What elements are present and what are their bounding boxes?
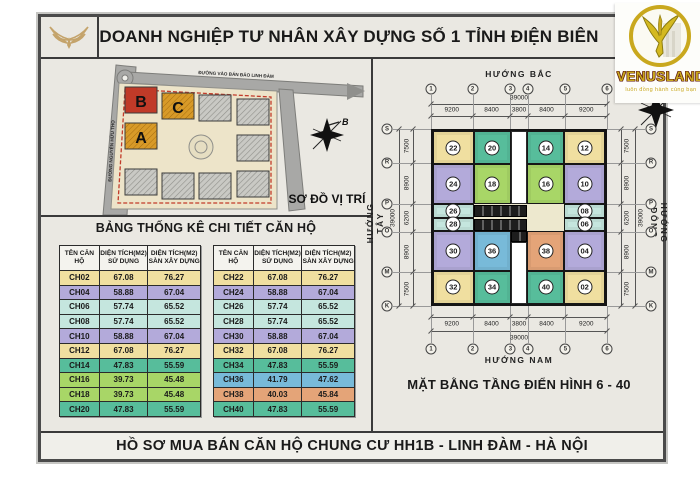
block-b-label: B xyxy=(135,94,147,111)
unit-26: 26 xyxy=(433,204,474,218)
dimension-line xyxy=(431,116,607,117)
dimension-label: 9200 xyxy=(445,321,459,328)
unit-number: 12 xyxy=(577,140,592,155)
tower-block xyxy=(125,169,157,195)
unit-10: 10 xyxy=(564,164,605,204)
dimension-label: 8400 xyxy=(539,321,553,328)
dimension-label: 8400 xyxy=(539,107,553,114)
grid-leader-line xyxy=(565,95,566,129)
unit-number: 26 xyxy=(446,203,461,218)
floor-area-value: 55.59 xyxy=(148,358,201,373)
grid-leader-line xyxy=(607,163,645,164)
tower-block xyxy=(237,99,269,125)
grid-row-marker: K xyxy=(382,301,393,312)
tower-block xyxy=(199,173,231,199)
brand-tagline: luôn đồng hành cùng bạn xyxy=(615,87,700,93)
use-area-value: 58.88 xyxy=(99,329,148,344)
table-row: CH1447.8355.59 xyxy=(60,358,201,373)
use-area-value: 67.08 xyxy=(99,271,148,286)
grid-leader-line xyxy=(565,306,566,343)
footer-bar: HỒ SƠ MUA BÁN CĂN HỘ CHUNG CƯ HH1B - LIN… xyxy=(41,431,663,459)
grid-leader-line xyxy=(607,95,608,129)
unit-name: CH04 xyxy=(60,285,100,300)
venusland-logo: VENUSLAND luôn đồng hành cùng bạn xyxy=(615,3,700,103)
grid-leader-line xyxy=(607,204,645,205)
grid-leader-line xyxy=(510,306,511,343)
use-area-value: 57.74 xyxy=(99,300,148,315)
dimension-line xyxy=(399,129,400,306)
grid-column-marker: 2 xyxy=(467,344,478,355)
floor-area-value: 55.59 xyxy=(148,402,201,417)
unit-number: 04 xyxy=(577,244,592,259)
grid-column-marker: 5 xyxy=(560,344,571,355)
floor-area-value: 67.04 xyxy=(302,285,355,300)
unit-36: 36 xyxy=(474,231,511,270)
unit-number: 18 xyxy=(485,177,500,192)
dimension-label: 8900 xyxy=(624,176,631,190)
use-area-value: 47.83 xyxy=(253,358,302,373)
unit-number: 34 xyxy=(485,280,500,295)
unit-name: CH02 xyxy=(60,271,100,286)
dimension-label: 7500 xyxy=(404,282,411,296)
site-map: B C A ĐƯỜNG VÀO BÁN ĐẢO LINH ĐÀM ĐƯỜNG N… xyxy=(41,59,371,215)
floor-area-value: 55.59 xyxy=(302,402,355,417)
unit-table-left: TÊN CĂN HỘ DIỆN TÍCH(M2)SỬ DỤNG DIỆN TÍC… xyxy=(59,245,201,417)
use-area-value: 39.73 xyxy=(99,387,148,402)
direction-south: HƯỚNG NAM xyxy=(431,355,607,365)
unit-number: 28 xyxy=(446,217,461,232)
unit-name: CH08 xyxy=(60,314,100,329)
dimension-line xyxy=(413,129,414,306)
table-row: CH2657.7465.52 xyxy=(214,300,355,315)
site-map-title: SƠ ĐỒ VỊ TRÍ xyxy=(289,191,367,206)
unit-number: 32 xyxy=(446,280,461,295)
grid-leader-line xyxy=(510,95,511,129)
plan-title: MẶT BẰNG TẦNG ĐIỂN HÌNH 6 - 40 xyxy=(381,377,657,392)
use-area-value: 47.83 xyxy=(253,402,302,417)
table-title: BẢNG THỐNG KÊ CHI TIẾT CĂN HỘ xyxy=(41,221,371,235)
floor-area-value: 76.27 xyxy=(148,271,201,286)
table-row: CH2857.7465.52 xyxy=(214,314,355,329)
unit-40: 40 xyxy=(527,271,564,304)
direction-north: HƯỚNG BẮC xyxy=(431,69,607,79)
grid-leader-line xyxy=(607,306,608,343)
wings-icon xyxy=(47,23,91,51)
grid-column-marker: 4 xyxy=(522,84,533,95)
table-row: CH3641.7947.62 xyxy=(214,373,355,388)
unit-20: 20 xyxy=(474,131,511,164)
col-header-name: TÊN CĂN HỘ xyxy=(214,246,254,271)
grid-column-marker: 6 xyxy=(602,84,613,95)
dimension-label: 8900 xyxy=(404,245,411,259)
unit-number: 36 xyxy=(485,244,500,259)
use-area-value: 57.74 xyxy=(99,314,148,329)
unit-name: CH28 xyxy=(214,314,254,329)
dimension-label: 9200 xyxy=(579,107,593,114)
grid-row-marker: M xyxy=(382,267,393,278)
unit-06: 06 xyxy=(564,218,605,232)
table-row: CH2267.0876.27 xyxy=(214,271,355,286)
use-area-value: 58.88 xyxy=(253,329,302,344)
grid-row-marker: K xyxy=(646,301,657,312)
floor-area-value: 45.84 xyxy=(302,387,355,402)
floor-area-value: 65.52 xyxy=(148,300,201,315)
dimension-label: 9200 xyxy=(445,107,459,114)
unit-12: 12 xyxy=(564,131,605,164)
dimension-line xyxy=(431,317,607,318)
unit-24: 24 xyxy=(433,164,474,204)
use-area-value: 57.74 xyxy=(253,300,302,315)
dimension-line xyxy=(431,104,607,105)
unit-number: 02 xyxy=(577,280,592,295)
tower-block xyxy=(237,135,269,161)
unit-16: 16 xyxy=(527,164,564,204)
roundabout-center xyxy=(122,75,128,81)
dimension-total-label: 39000 xyxy=(510,335,528,342)
site-compass-icon: B xyxy=(310,117,349,152)
floor-area-value: 47.62 xyxy=(302,373,355,388)
eagle-icon xyxy=(629,5,691,67)
dimension-total-label: 39000 xyxy=(510,95,528,102)
unit-name: CH38 xyxy=(214,387,254,402)
dimension-label: 7500 xyxy=(404,139,411,153)
unit-name: CH16 xyxy=(60,373,100,388)
grid-column-marker: 4 xyxy=(522,344,533,355)
grid-column-marker: 1 xyxy=(426,84,437,95)
grid-column-marker: 3 xyxy=(505,84,516,95)
grid-row-marker: M xyxy=(646,267,657,278)
unit-name: CH24 xyxy=(214,285,254,300)
direction-east: HƯỚNG ĐÔNG xyxy=(649,191,669,255)
table-row: CH3058.8867.04 xyxy=(214,329,355,344)
page-title: DOANH NGHIỆP TƯ NHÂN XÂY DỰNG SỐ 1 TỈNH … xyxy=(99,27,598,47)
grid-leader-line xyxy=(528,306,529,343)
dimension-line xyxy=(621,129,622,306)
grid-leader-line xyxy=(431,95,432,129)
dimension-total-label: 39000 xyxy=(390,208,397,226)
dimension-label: 7500 xyxy=(624,139,631,153)
unit-number: 06 xyxy=(577,217,592,232)
grid-leader-line xyxy=(607,232,645,233)
block-a-label: A xyxy=(135,130,147,147)
grid-leader-line xyxy=(528,95,529,129)
compass-north-label: B xyxy=(342,117,349,127)
use-area-value: 41.79 xyxy=(253,373,302,388)
table-row: CH4047.8355.59 xyxy=(214,402,355,417)
tower-block xyxy=(237,171,269,197)
table-row: CH3447.8355.59 xyxy=(214,358,355,373)
header-bar: DOANH NGHIỆP TƯ NHÂN XÂY DỰNG SỐ 1 TỈNH … xyxy=(41,17,663,59)
unit-name: CH20 xyxy=(60,402,100,417)
footer-text: HỒ SƠ MUA BÁN CĂN HỘ CHUNG CƯ HH1B - LIN… xyxy=(116,438,588,454)
col-header-use-area: DIỆN TÍCH(M2)SỬ DỤNG xyxy=(253,246,302,271)
dimension-label: 6200 xyxy=(404,210,411,224)
floor-area-value: 45.48 xyxy=(148,387,201,402)
floor-area-value: 65.52 xyxy=(302,300,355,315)
dimension-label: 8400 xyxy=(484,107,498,114)
floor-area-value: 65.52 xyxy=(302,314,355,329)
unit-number: 10 xyxy=(577,177,592,192)
dimension-label: 3800 xyxy=(512,107,526,114)
unit-02: 02 xyxy=(564,271,605,304)
unit-30: 30 xyxy=(433,231,474,270)
dimension-label: 7500 xyxy=(624,282,631,296)
unit-number: 22 xyxy=(446,140,461,155)
unit-38: 38 xyxy=(527,231,564,270)
floor-area-value: 55.59 xyxy=(302,358,355,373)
dimension-label: 9200 xyxy=(579,321,593,328)
grid-row-marker: R xyxy=(646,157,657,168)
table-row: CH3840.0345.84 xyxy=(214,387,355,402)
col-header-use-area: DIỆN TÍCH(M2)SỬ DỤNG xyxy=(99,246,148,271)
tower-block xyxy=(199,95,231,121)
block-c-label: C xyxy=(172,100,184,117)
use-area-value: 67.08 xyxy=(253,271,302,286)
table-row: CH2458.8867.04 xyxy=(214,285,355,300)
dimension-label: 8400 xyxy=(484,321,498,328)
grid-column-marker: 6 xyxy=(602,344,613,355)
brand-name: VENUSLAND xyxy=(615,69,700,84)
unit-number: 20 xyxy=(485,140,500,155)
unit-34: 34 xyxy=(474,271,511,304)
floor-area-value: 67.04 xyxy=(302,329,355,344)
table-row: CH1058.8867.04 xyxy=(60,329,201,344)
unit-name: CH34 xyxy=(214,358,254,373)
unit-number: 08 xyxy=(577,203,592,218)
floor-area-value: 76.27 xyxy=(148,343,201,358)
use-area-value: 58.88 xyxy=(253,285,302,300)
unit-name: CH30 xyxy=(214,329,254,344)
grid-leader-line xyxy=(607,306,645,307)
grid-leader-line xyxy=(607,272,645,273)
direction-west: HƯỚNG TÂY xyxy=(365,191,385,255)
dimension-total-label: 39000 xyxy=(638,208,645,226)
use-area-value: 67.08 xyxy=(253,343,302,358)
unit-name: CH14 xyxy=(60,358,100,373)
section-divider xyxy=(41,215,371,217)
unit-18: 18 xyxy=(474,164,511,204)
unit-name: CH12 xyxy=(60,343,100,358)
grid-leader-line xyxy=(473,95,474,129)
unit-name: CH06 xyxy=(60,300,100,315)
unit-number: 24 xyxy=(446,177,461,192)
grid-column-marker: 5 xyxy=(560,84,571,95)
unit-name: CH22 xyxy=(214,271,254,286)
unit-table-right: TÊN CĂN HỘ DIỆN TÍCH(M2)SỬ DỤNG DIỆN TÍC… xyxy=(213,245,355,417)
grid-row-marker: S xyxy=(382,124,393,135)
dimension-line xyxy=(431,331,607,332)
courtyard-circle xyxy=(189,135,213,159)
document-frame: DOANH NGHIỆP TƯ NHÂN XÂY DỰNG SỐ 1 TỈNH … xyxy=(38,14,666,462)
grid-leader-line xyxy=(607,129,645,130)
unit-number: 16 xyxy=(538,177,553,192)
tower-block xyxy=(162,173,194,199)
unit-22: 22 xyxy=(433,131,474,164)
grid-leader-line xyxy=(431,306,432,343)
dimension-label: 8900 xyxy=(624,245,631,259)
col-header-floor-area: DIỆN TÍCH(M2)SÀN XÂY DỰNG xyxy=(148,246,201,271)
dimension-line xyxy=(635,129,636,306)
floor-area-value: 67.04 xyxy=(148,285,201,300)
use-area-value: 40.03 xyxy=(253,387,302,402)
use-area-value: 57.74 xyxy=(253,314,302,329)
table-row: CH0857.7465.52 xyxy=(60,314,201,329)
unit-32: 32 xyxy=(433,271,474,304)
unit-name: CH40 xyxy=(214,402,254,417)
unit-number: 30 xyxy=(446,244,461,259)
unit-08: 08 xyxy=(564,204,605,218)
grid-leader-line xyxy=(473,306,474,343)
use-area-value: 39.73 xyxy=(99,373,148,388)
table-row: CH3267.0876.27 xyxy=(214,343,355,358)
floor-area-value: 76.27 xyxy=(302,271,355,286)
table-row: CH0458.8867.04 xyxy=(60,285,201,300)
grid-leader-line xyxy=(393,306,431,307)
unit-number: 14 xyxy=(538,140,553,155)
unit-number: 40 xyxy=(538,280,553,295)
unit-name: CH26 xyxy=(214,300,254,315)
unit-name: CH36 xyxy=(214,373,254,388)
unit-04: 04 xyxy=(564,231,605,270)
unit-28: 28 xyxy=(433,218,474,232)
company-logo xyxy=(41,17,99,57)
use-area-value: 47.83 xyxy=(99,402,148,417)
table-row: CH1639.7345.48 xyxy=(60,373,201,388)
table-row: CH1267.0876.27 xyxy=(60,343,201,358)
floor-area-value: 65.52 xyxy=(148,314,201,329)
table-row: CH0657.7465.52 xyxy=(60,300,201,315)
dimension-label: 8900 xyxy=(404,176,411,190)
grid-column-marker: 1 xyxy=(426,344,437,355)
unit-14: 14 xyxy=(527,131,564,164)
floor-area-value: 67.04 xyxy=(148,329,201,344)
unit-name: CH32 xyxy=(214,343,254,358)
table-row: CH1839.7345.48 xyxy=(60,387,201,402)
grid-column-marker: 3 xyxy=(505,344,516,355)
unit-name: CH18 xyxy=(60,387,100,402)
floor-area-value: 45.48 xyxy=(148,373,201,388)
table-row: CH2047.8355.59 xyxy=(60,402,201,417)
unit-number: 38 xyxy=(538,244,553,259)
grid-row-marker: R xyxy=(382,157,393,168)
floor-plan: 2220141224181610260828063036380432344002 xyxy=(431,129,607,306)
dimension-label: 6200 xyxy=(624,210,631,224)
dimension-label: 3800 xyxy=(512,321,526,328)
grid-column-marker: 2 xyxy=(467,84,478,95)
table-row: CH0267.0876.27 xyxy=(60,271,201,286)
unit-name: CH10 xyxy=(60,329,100,344)
use-area-value: 47.83 xyxy=(99,358,148,373)
use-area-value: 58.88 xyxy=(99,285,148,300)
col-header-name: TÊN CĂN HỘ xyxy=(60,246,100,271)
use-area-value: 67.08 xyxy=(99,343,148,358)
col-header-floor-area: DIỆN TÍCH(M2)SÀN XÂY DỰNG xyxy=(302,246,355,271)
floor-area-value: 76.27 xyxy=(302,343,355,358)
